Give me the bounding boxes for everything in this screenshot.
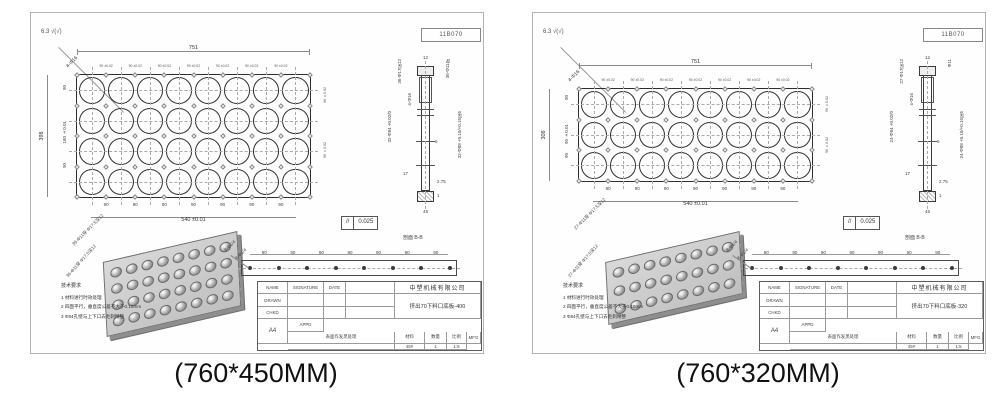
tie-hole-mark xyxy=(162,164,168,170)
section-view: 12 36-Φ17深12 36-Φ11穿 4-Φ16 32-Φ84 +0.02/… xyxy=(383,53,483,221)
tie-hole-mark xyxy=(220,194,226,200)
centerline-vertical xyxy=(739,81,740,189)
strip-hole-dot xyxy=(779,266,783,270)
iso-hole xyxy=(222,290,234,303)
iso-hole xyxy=(628,263,640,276)
tie-hole-mark xyxy=(307,133,313,139)
tb-sheet-size: A4 xyxy=(258,319,288,344)
iso-hole xyxy=(692,284,704,297)
pitch-dim-bottom: 90 xyxy=(133,202,138,207)
tb-date-header: DATE xyxy=(826,282,848,294)
iso-hole xyxy=(659,255,671,268)
drawing-sheet-right: 11B070 6.3 √(√) 4-Φ16 751 90 ±0.0290 ±0.… xyxy=(532,12,986,354)
strip-hole-dot xyxy=(950,266,954,270)
dim-17: 17 xyxy=(403,171,408,176)
strip-section-view: 90909090909090 xyxy=(743,260,959,276)
tie-hole-mark xyxy=(74,164,80,170)
centerline-horizontal xyxy=(571,165,820,166)
tie-hole-mark xyxy=(249,103,255,109)
strip-pitch-dim: 90 xyxy=(821,250,826,255)
dowel-callout: 4-Φ16 xyxy=(407,93,412,106)
tie-hole-mark xyxy=(278,164,284,170)
title-block: NAME SIGNATURE DATE 中塑机械有限公司 DRAWN 挤出70下… xyxy=(257,281,482,351)
tie-hole-mark xyxy=(191,164,197,170)
centerline-vertical xyxy=(266,67,267,205)
tie-hole-mark xyxy=(605,178,611,184)
dim-45: 45 xyxy=(423,209,428,214)
centerline-vertical xyxy=(710,81,711,189)
tb-name-header: NAME xyxy=(760,282,790,294)
strip-pitch-dim: 90 xyxy=(290,250,295,255)
surface-finish-mark: 6.3 √(√) xyxy=(543,29,564,35)
technical-notes: 技术要求 1 材料进行时效处理2 四面平行，垂直度公差不大于0.10mm3 Φ8… xyxy=(563,281,683,321)
counterbore-callout: 36-Φ17深12 xyxy=(397,59,403,84)
tb-row-chkd: CHKD xyxy=(760,307,790,319)
strip-pitch-dim: 90 xyxy=(319,250,324,255)
iso-callout-left: 27-Φ11穿 Φ17.5深12 xyxy=(567,244,600,280)
tb-row-drawn: DRAWN xyxy=(760,294,790,306)
notes-title: 技术要求 xyxy=(61,281,181,292)
iso-hole xyxy=(189,264,201,277)
centerline-horizontal xyxy=(69,182,318,183)
tie-hole-mark xyxy=(576,86,582,92)
pitch-dim-top: 90 ±0.02 xyxy=(216,64,229,68)
plan-view-plate: 751 90 ±0.0290 ±0.0290 ±0.0290 ±0.0290 ±… xyxy=(578,88,813,182)
tie-hole-mark xyxy=(74,72,80,78)
tie-hole-mark xyxy=(191,194,197,200)
dimension-line-top xyxy=(579,65,812,66)
tb-name-header: NAME xyxy=(258,282,288,294)
pitch-dim-bottom: 90 xyxy=(162,202,167,207)
note-item: 2 四面平行，垂直度公差不大于0.10mm xyxy=(61,302,181,312)
technical-notes: 技术要求 1 材料进行时效处理2 四面平行，垂直度公差不大于0.10mm3 Φ8… xyxy=(61,281,181,321)
tb-scale-label: 比例 xyxy=(447,332,467,344)
parallelism-value: 0.025 xyxy=(354,217,377,229)
bore-dim-left: 32-Φ84 +0.02/0 xyxy=(387,111,392,143)
tie-hole-mark xyxy=(809,147,815,153)
pitch-dim-top: 90 ±0.02 xyxy=(129,64,142,68)
tie-hole-mark xyxy=(74,194,80,200)
pitch-dim-bottom: 90 xyxy=(693,186,698,191)
pitch-dim-top: 90 ±0.02 xyxy=(660,78,673,82)
tie-hole-mark xyxy=(132,164,138,170)
strip-hole-dot xyxy=(334,266,338,270)
iso-hole xyxy=(188,247,200,260)
pitch-dim-top: 90 ±0.02 xyxy=(747,78,760,82)
strip-pitch-dim: 90 xyxy=(376,250,381,255)
centerline-horizontal xyxy=(69,151,318,152)
tie-hole-mark xyxy=(278,103,284,109)
iso-hole xyxy=(691,266,703,279)
counterbore-callout: 27-Φ17深12 xyxy=(899,59,905,84)
pitch-dim-top: 90 ±0.02 xyxy=(100,64,113,68)
tie-hole-mark xyxy=(576,147,582,153)
bore-dim-right: 32-Φ88 +0.10/+0.15深5 xyxy=(457,111,463,158)
centerline-vertical xyxy=(623,81,624,189)
iso-hole xyxy=(706,245,718,258)
tie-hole-mark xyxy=(751,86,757,92)
note-item: 1 材料进行时效处理 xyxy=(61,293,181,303)
note-item: 2 四面平行，垂直度公差不大于0.10mm xyxy=(563,302,683,312)
tie-hole-mark xyxy=(634,147,640,153)
dim-12: 12 xyxy=(925,55,930,60)
parallelism-symbol: // xyxy=(844,217,856,229)
strip-pitch-dim: 90 xyxy=(878,250,883,255)
tie-hole-mark xyxy=(751,178,757,184)
tie-hole-mark xyxy=(191,133,197,139)
tie-hole-mark xyxy=(132,103,138,109)
drawing-number: 11B070 xyxy=(421,28,481,42)
tie-hole-mark xyxy=(220,133,226,139)
dim-bottom: 540 ±0.01 xyxy=(579,201,812,207)
through-hole-callout: Φ11 xyxy=(947,59,952,67)
strip-hole-dot xyxy=(391,266,395,270)
strip-pitch-dim: 90 xyxy=(907,250,912,255)
centerline-vertical xyxy=(92,67,93,205)
tie-hole-mark xyxy=(751,147,757,153)
centerline-vertical xyxy=(208,67,209,205)
strip-hole-dot xyxy=(419,266,423,270)
parallelism-tolerance-frame: // 0.025 xyxy=(843,216,880,230)
tie-hole-mark xyxy=(278,72,284,78)
iso-hole xyxy=(110,266,122,279)
tb-date-header: DATE xyxy=(324,282,346,294)
iso-hole xyxy=(141,258,153,271)
iso-hole xyxy=(220,257,232,270)
bore-dim-right: 24-Φ88 +0.10/+0.15深5 xyxy=(959,111,965,158)
tie-hole-mark xyxy=(249,194,255,200)
tie-hole-mark xyxy=(780,178,786,184)
tie-hole-mark xyxy=(751,117,757,123)
strip-pitch-dim: 90 xyxy=(433,250,438,255)
tie-hole-mark xyxy=(722,117,728,123)
parallelism-value: 0.025 xyxy=(856,217,879,229)
tie-hole-mark xyxy=(634,117,640,123)
tb-finish-note: 表面作发黑处理 xyxy=(790,332,897,344)
centerline-horizontal xyxy=(571,135,820,136)
tie-hole-mark xyxy=(634,86,640,92)
tb-company: 中塑机械有限公司 xyxy=(897,282,983,294)
dim-top: 751 xyxy=(579,59,812,65)
centerline-horizontal xyxy=(571,104,820,105)
tb-row-mfg: MFG xyxy=(467,332,481,344)
tie-hole-mark xyxy=(220,103,226,109)
tie-hole-mark xyxy=(307,164,313,170)
section-view: 12 27-Φ17深12 Φ11 4-Φ16 24-Φ84 +0.02/0 24… xyxy=(885,53,985,221)
note-item: 3 Φ84孔壁与上下口去毛刺精整 xyxy=(61,312,181,322)
tie-hole-mark xyxy=(74,103,80,109)
pitch-dim-bottom: 90 xyxy=(664,186,669,191)
tie-hole-mark xyxy=(278,194,284,200)
tie-hole-mark xyxy=(220,164,226,170)
tb-material-value: 45# xyxy=(395,344,425,350)
iso-hole xyxy=(723,259,735,272)
dim-2-75: 2.75 xyxy=(437,179,446,184)
tie-hole-mark xyxy=(103,194,109,200)
tie-hole-mark xyxy=(307,72,313,78)
pitch-dim-bottom: 90 xyxy=(249,202,254,207)
centerline-vertical xyxy=(150,67,151,205)
tie-hole-mark xyxy=(576,117,582,123)
dim-5: 5 xyxy=(435,139,438,144)
tb-company: 中塑机械有限公司 xyxy=(395,282,481,294)
tie-hole-mark xyxy=(191,72,197,78)
strip-hole-dot xyxy=(448,266,452,270)
tie-hole-mark xyxy=(278,133,284,139)
section-label: 剖面 B-B xyxy=(905,234,925,241)
tie-hole-mark xyxy=(605,86,611,92)
tb-signature-header: SIGNATURE xyxy=(790,282,826,294)
pitch-dim-top: 90 ±0.02 xyxy=(187,64,200,68)
dim-top: 751 xyxy=(77,45,310,51)
centerline-vertical xyxy=(652,81,653,189)
tie-hole-mark xyxy=(249,72,255,78)
pitch-dim-bottom: 90 xyxy=(191,202,196,207)
tie-hole-mark xyxy=(605,117,611,123)
tb-row-mfg: MFG xyxy=(969,332,983,344)
iso-hole xyxy=(675,252,687,265)
strip-pitch-dim: 90 xyxy=(347,250,352,255)
pitch-dim-top: 90 ±0.02 xyxy=(602,78,615,82)
plan-view-plate: 751 90 ±0.0290 ±0.0290 ±0.0290 ±0.0290 ±… xyxy=(76,74,311,198)
iso-hole xyxy=(707,262,719,275)
strip-section-view: 90909090909090 xyxy=(241,260,457,276)
centerline-vertical xyxy=(797,81,798,189)
tie-hole-mark xyxy=(220,72,226,78)
centerline-horizontal xyxy=(69,90,318,91)
tie-hole-mark xyxy=(664,178,670,184)
iso-callout-left: 36-Φ11穿 Φ17.5深12 xyxy=(65,244,98,280)
tie-hole-mark xyxy=(162,72,168,78)
iso-hole xyxy=(204,244,216,257)
tb-row-chkd: CHKD xyxy=(258,307,288,319)
tie-hole-mark xyxy=(103,164,109,170)
tie-hole-mark xyxy=(664,147,670,153)
centerline-vertical xyxy=(121,67,122,205)
tb-row-drawn: DRAWN xyxy=(258,294,288,306)
tie-hole-mark xyxy=(132,133,138,139)
iso-hole xyxy=(708,280,720,293)
tb-signature-header: SIGNATURE xyxy=(288,282,324,294)
centerline-vertical xyxy=(295,67,296,205)
dim-5: 5 xyxy=(937,139,940,144)
tie-hole-mark xyxy=(162,194,168,200)
pitch-dim-bottom: 90 xyxy=(780,186,785,191)
pitch-dim-top: 90 ±0.02 xyxy=(245,64,258,68)
centerline-vertical xyxy=(179,67,180,205)
dim-2-75: 2.75 xyxy=(939,179,948,184)
tb-qty-value: 1 xyxy=(927,344,949,350)
pitch-dim-bottom: 90 xyxy=(751,186,756,191)
surface-finish-mark: 6.3 √(√) xyxy=(41,29,62,35)
strip-hole-dot xyxy=(864,266,868,270)
pitch-dim-bottom: 90 xyxy=(722,186,727,191)
tie-hole-mark xyxy=(780,86,786,92)
tie-hole-mark xyxy=(162,133,168,139)
dim-45: 45 xyxy=(925,209,930,214)
tie-hole-mark xyxy=(780,117,786,123)
iso-hole xyxy=(724,277,736,290)
strip-hole-dot xyxy=(836,266,840,270)
iso-hole xyxy=(125,262,137,275)
pitch-dim-bottom: 90 xyxy=(104,202,109,207)
tie-hole-mark xyxy=(693,178,699,184)
note-item: 3 Φ84孔壁与上下口去毛刺精整 xyxy=(563,312,683,322)
tie-hole-mark xyxy=(132,194,138,200)
drawing-number: 11B070 xyxy=(923,28,983,42)
pitch-dim-top: 90 ±0.02 xyxy=(718,78,731,82)
tie-hole-mark xyxy=(634,178,640,184)
strip-hole-dot xyxy=(277,266,281,270)
dim-1: 1 xyxy=(437,193,440,198)
tie-hole-mark xyxy=(664,86,670,92)
tie-hole-mark xyxy=(809,178,815,184)
pitch-dim-bottom: 90 xyxy=(606,186,611,191)
tie-hole-mark xyxy=(693,86,699,92)
strip-hole-dot xyxy=(921,266,925,270)
tb-qty-label: 数量 xyxy=(927,332,949,344)
tb-qty-label: 数量 xyxy=(425,332,447,344)
iso-hole xyxy=(206,293,218,306)
tb-qty-value: 1 xyxy=(425,344,447,350)
tie-hole-mark xyxy=(693,117,699,123)
tb-material-label: 材料 xyxy=(897,332,927,344)
tie-hole-mark xyxy=(249,133,255,139)
strip-hole-dot xyxy=(362,266,366,270)
iso-hole xyxy=(172,251,184,264)
tb-material-value: 45# xyxy=(897,344,927,350)
pitch-dim-top: 90 ±0.02 xyxy=(631,78,644,82)
strip-pitch-dim: 90 xyxy=(764,250,769,255)
caption-left: (760*450MM) xyxy=(30,358,482,389)
tie-hole-mark xyxy=(664,117,670,123)
tie-hole-mark xyxy=(780,147,786,153)
tie-hole-mark xyxy=(74,133,80,139)
strip-hole-dot xyxy=(305,266,309,270)
tb-scale-value: 1:5 xyxy=(949,344,969,350)
drawing-sheet-left: 11B070 6.3 √(√) 4-Φ16 751 90 ±0.0290 ±0.… xyxy=(30,12,484,354)
tie-hole-mark xyxy=(307,103,313,109)
strip-pitch-dim: 90 xyxy=(262,250,267,255)
tie-hole-mark xyxy=(722,147,728,153)
tb-scale-value: 1:5 xyxy=(447,344,467,350)
strip-pitch-dim: 90 xyxy=(405,250,410,255)
section-label: 剖面 B-B xyxy=(403,234,423,241)
parallelism-tolerance-frame: // 0.025 xyxy=(341,216,378,230)
pitch-dim-top: 90 ±0.02 xyxy=(689,78,702,82)
tie-hole-mark xyxy=(722,178,728,184)
centerline-horizontal xyxy=(69,121,318,122)
tb-row-appd: APPD xyxy=(790,319,826,331)
dim-17: 17 xyxy=(905,171,910,176)
tie-hole-mark xyxy=(722,86,728,92)
strip-hole-dot xyxy=(893,266,897,270)
tie-hole-mark xyxy=(249,164,255,170)
tie-hole-mark xyxy=(576,178,582,184)
dim-12: 12 xyxy=(423,55,428,60)
corner-hole-callout: 4-Φ16 xyxy=(567,69,581,83)
tie-hole-mark xyxy=(307,194,313,200)
tie-hole-mark xyxy=(809,117,815,123)
centerline-vertical xyxy=(237,67,238,205)
tie-hole-mark xyxy=(132,72,138,78)
centerline-vertical xyxy=(768,81,769,189)
dim-height-total: 308 xyxy=(549,89,550,181)
iso-hole xyxy=(190,280,202,293)
strip-pitch-dim: 90 xyxy=(792,250,797,255)
dim-bottom: 540 ±0.01 xyxy=(77,217,310,223)
title-block: NAME SIGNATURE DATE 中塑机械有限公司 DRAWN 挤出70下… xyxy=(759,281,984,351)
iso-hole xyxy=(157,255,169,268)
iso-hole xyxy=(643,259,655,272)
iso-hole xyxy=(221,273,233,286)
centerline-vertical xyxy=(681,81,682,189)
through-hole-callout: 36-Φ11穿 xyxy=(445,59,451,78)
tie-hole-mark xyxy=(809,86,815,92)
tie-hole-mark xyxy=(191,103,197,109)
tb-sheet-size: A4 xyxy=(760,319,790,344)
iso-hole xyxy=(191,297,203,310)
dowel-callout: 4-Φ16 xyxy=(909,93,914,106)
tie-hole-mark xyxy=(693,147,699,153)
strip-pitch-dim: 90 xyxy=(935,250,940,255)
centerline-vertical xyxy=(594,81,595,189)
tb-scale-label: 比例 xyxy=(949,332,969,344)
strip-pitch-dim: 90 xyxy=(849,250,854,255)
dim-1: 1 xyxy=(939,193,942,198)
pitch-dim-bottom: 90 xyxy=(278,202,283,207)
iso-hole xyxy=(612,266,624,279)
dim-height-total: 398 xyxy=(47,75,48,197)
tb-finish-note: 表面作发黑处理 xyxy=(288,332,395,344)
page: 11B070 6.3 √(√) 4-Φ16 751 90 ±0.0290 ±0.… xyxy=(0,0,1000,404)
iso-hole xyxy=(205,260,217,273)
iso-hole xyxy=(206,277,218,290)
note-item: 1 材料进行时效处理 xyxy=(563,293,683,303)
pitch-dim-bottom: 90 xyxy=(220,202,225,207)
tie-hole-mark xyxy=(103,72,109,78)
parallelism-symbol: // xyxy=(342,217,354,229)
tie-hole-mark xyxy=(605,147,611,153)
tb-part-name: 挤出70下料口底板-320 xyxy=(897,294,983,319)
tie-hole-mark xyxy=(162,103,168,109)
dimension-line-top xyxy=(77,51,310,52)
tb-material-label: 材料 xyxy=(395,332,425,344)
strip-hole-dot xyxy=(807,266,811,270)
tie-hole-mark xyxy=(103,133,109,139)
iso-hole xyxy=(173,268,185,281)
pitch-dim-bottom: 90 xyxy=(635,186,640,191)
pitch-dim-top: 90 ±0.02 xyxy=(776,78,789,82)
bore-dim-left: 24-Φ84 +0.02/0 xyxy=(889,111,894,143)
notes-title: 技术要求 xyxy=(563,281,683,292)
tb-part-name: 挤出70下料口底板-400 xyxy=(395,294,481,319)
tb-row-appd: APPD xyxy=(288,319,324,331)
pitch-dim-top: 90 ±0.02 xyxy=(274,64,287,68)
tie-hole-mark xyxy=(103,103,109,109)
caption-right: (760*320MM) xyxy=(532,358,984,389)
pitch-dim-top: 90 ±0.02 xyxy=(158,64,171,68)
iso-hole xyxy=(691,248,703,261)
